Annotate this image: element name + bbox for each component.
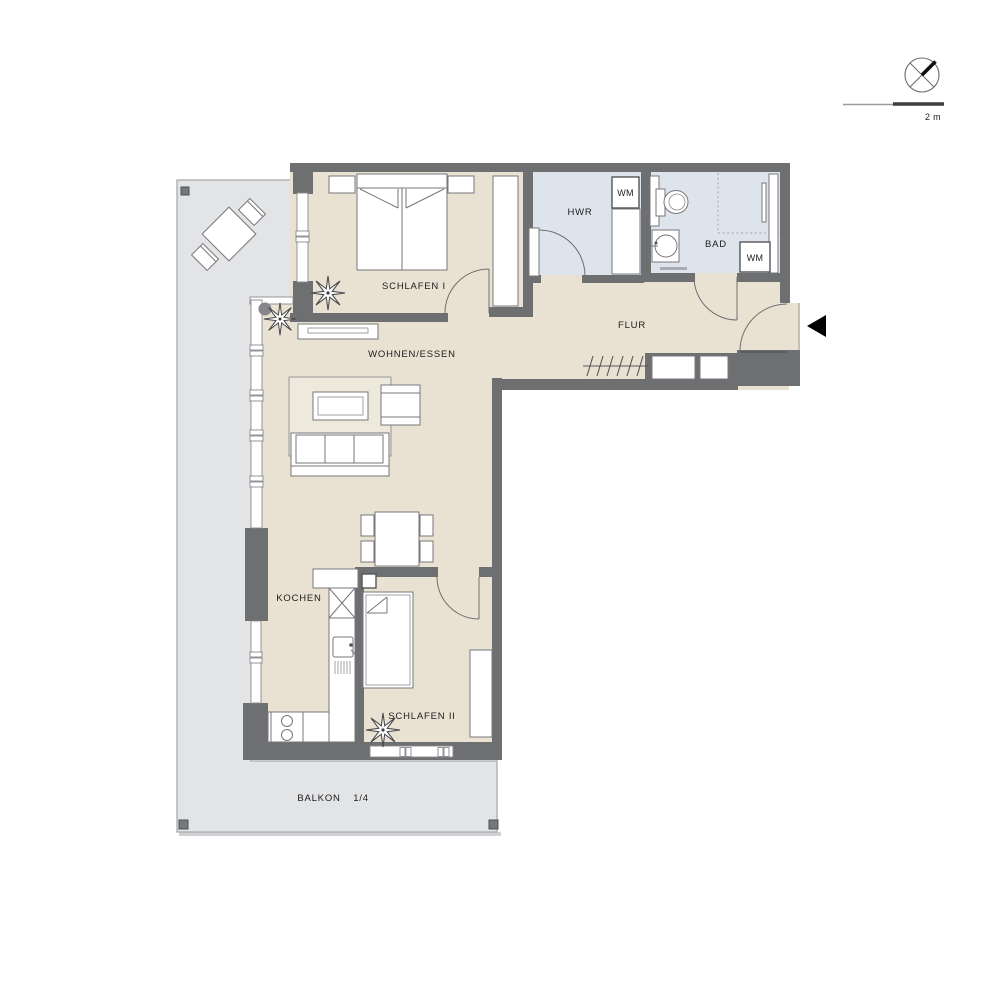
hall-cabinet: [700, 356, 728, 379]
wall-west-corner: [243, 703, 268, 744]
window-mullion: [250, 482, 263, 487]
label-wm-hwr: WM: [617, 188, 634, 198]
wardrobe: [470, 650, 492, 737]
window-wohnen-west: [251, 300, 262, 528]
kitchen-tall-unit: [329, 588, 355, 618]
nightstand: [329, 176, 355, 193]
window-mullion: [250, 430, 263, 435]
dining-table: [375, 512, 419, 566]
sofa: [291, 433, 389, 476]
dining-chair: [361, 541, 374, 562]
dining-chair: [361, 515, 374, 536]
window-mullion: [250, 476, 263, 481]
bath-sink: [651, 230, 679, 262]
wall-post: [293, 163, 313, 194]
north-compass-icon: [905, 58, 939, 92]
scale-label: 2 m: [925, 112, 941, 122]
balcony-post: [181, 187, 189, 195]
wall-bad-south: [737, 273, 790, 282]
plant-icon: [311, 276, 345, 310]
coffee-table: [313, 392, 368, 420]
window-mullion: [250, 652, 262, 657]
wall-hwr-south: [582, 275, 644, 283]
window-mullion: [250, 436, 263, 441]
window-mullion: [296, 237, 309, 242]
label-wohnen-essen: WOHNEN/ESSEN: [368, 349, 456, 360]
window-mullion: [438, 748, 443, 757]
towel-radiator: [762, 183, 766, 222]
wall-schlafen2-north: [479, 567, 502, 577]
sideboard: [298, 324, 378, 339]
label-hwr: HWR: [567, 207, 592, 218]
plant-icon: [264, 303, 296, 335]
floor-plan-drawing: SCHLAFEN I WOHNEN/ESSEN FLUR HWR BAD KOC…: [0, 0, 1000, 1000]
entrance-arrow-icon: [807, 315, 826, 337]
wardrobe: [493, 176, 518, 306]
window-mullion: [250, 351, 263, 356]
label-balkon-share: 1/4: [353, 793, 369, 804]
wall-west-mid: [245, 528, 268, 621]
wall-post: [293, 281, 313, 314]
window-mullion: [406, 748, 411, 757]
wall-bad-south: [641, 273, 695, 282]
double-bed: [357, 174, 447, 270]
label-balkon: BALKON: [297, 793, 340, 804]
label-schlafen1: SCHLAFEN I: [382, 281, 446, 292]
wall-schlafen1-south: [290, 313, 448, 322]
armchair: [381, 385, 420, 425]
balcony-post: [489, 820, 498, 829]
stove: [271, 712, 303, 742]
single-bed: [363, 592, 413, 688]
window-mullion: [296, 231, 309, 236]
window-mullion: [444, 748, 449, 757]
window-mullion: [250, 658, 262, 663]
bath-mat: [660, 267, 687, 270]
kitchen-cabinet: [313, 569, 358, 588]
nightstand: [448, 176, 474, 193]
window-mullion: [250, 345, 263, 350]
wall-entrance-block: [737, 350, 800, 386]
window-mullion: [400, 748, 405, 757]
wall-flur-south: [497, 379, 647, 390]
floor-plan-page: SCHLAFEN I WOHNEN/ESSEN FLUR HWR BAD KOC…: [0, 0, 1000, 1000]
floor-entrance-recess: [789, 303, 800, 351]
scale-bar: 2 m: [843, 104, 944, 122]
hwr-cabinet: [612, 209, 640, 274]
hwr-door-leaf: [529, 228, 539, 276]
duct-column: [362, 574, 376, 588]
balcony-post: [179, 820, 188, 829]
hall-cabinet: [652, 356, 695, 379]
wall-top: [290, 163, 790, 172]
label-flur: FLUR: [618, 320, 646, 331]
label-schlafen2: SCHLAFEN II: [388, 711, 455, 722]
window-mullion: [250, 396, 263, 401]
label-wm-bad: WM: [747, 253, 764, 263]
dining-chair: [420, 515, 433, 536]
window-mullion: [250, 390, 263, 395]
label-kochen: KOCHEN: [276, 593, 321, 604]
dining-chair: [420, 541, 433, 562]
label-bad: BAD: [705, 239, 727, 250]
